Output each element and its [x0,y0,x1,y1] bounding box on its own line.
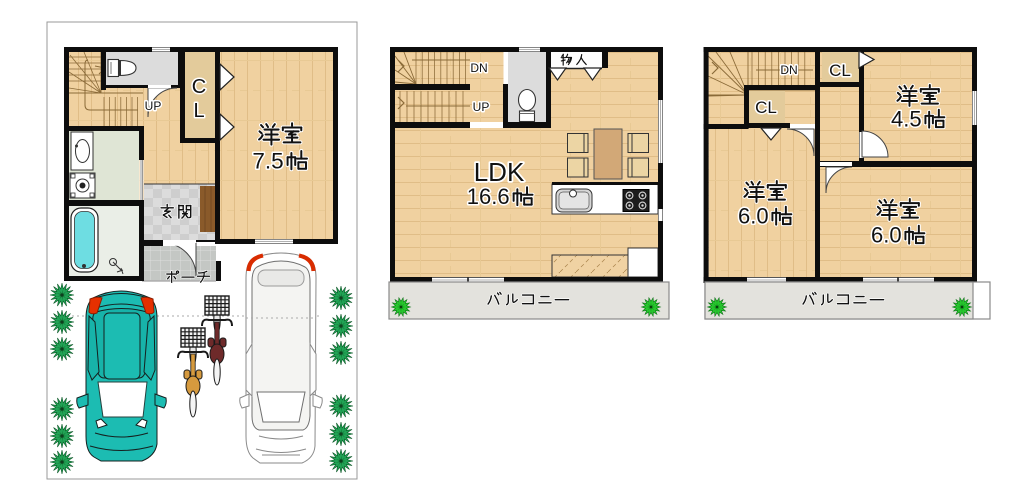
svg-text:16.6: 16.6 [467,184,510,209]
svg-text:L: L [193,100,204,122]
svg-text:UP: UP [145,99,162,113]
svg-text:LDK: LDK [474,157,525,187]
svg-text:6.0: 6.0 [738,204,769,229]
svg-text:DN: DN [780,63,797,77]
svg-text:CL: CL [829,61,851,80]
svg-text:DN: DN [470,61,487,75]
svg-text:CL: CL [755,98,777,117]
svg-text:6.0: 6.0 [871,223,902,248]
svg-text:4.5: 4.5 [891,107,922,132]
svg-text:7.5: 7.5 [252,148,283,173]
svg-text:UP: UP [473,100,490,114]
svg-text:C: C [192,76,206,98]
